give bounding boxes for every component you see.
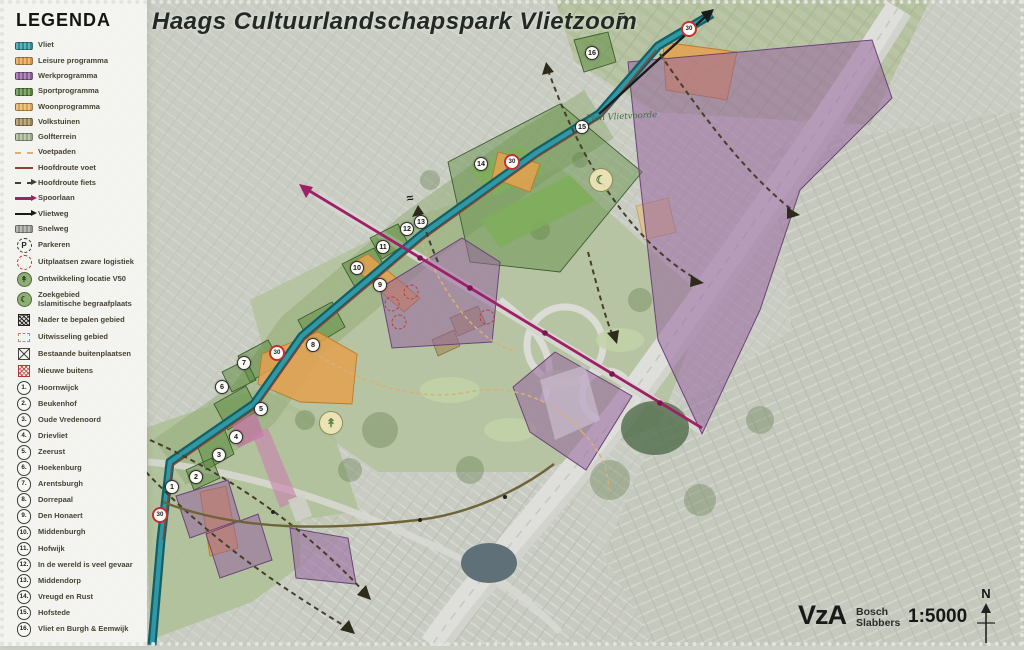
legend-item: Woonprogramma bbox=[14, 99, 143, 114]
legend-numbered-item: 13.Middendorp bbox=[14, 573, 143, 589]
numbered-circle-icon: 6. bbox=[14, 461, 34, 476]
map-stage: 1234567891011121314151630303030↟☾≈≈ Plan… bbox=[0, 0, 1024, 646]
legend-numbered-item: 15.Hofstede bbox=[14, 605, 143, 621]
heavy-logistics-relocation-marker bbox=[385, 297, 400, 312]
legend-numbered-item: 2.Beukenhof bbox=[14, 396, 143, 412]
parkeren-icon: P bbox=[14, 238, 34, 253]
numbered-circle-icon: 12. bbox=[14, 558, 34, 573]
legend-label: Hofstede bbox=[38, 609, 70, 618]
legend-item: Snelweg bbox=[14, 222, 143, 237]
speed-sign-30: 30 bbox=[681, 21, 697, 37]
legend-heading: LEGENDA bbox=[16, 10, 143, 31]
locatie-v50-map-icon: ↟ bbox=[319, 411, 343, 435]
legend-item: PParkeren bbox=[14, 237, 143, 254]
numbered-circle-icon: 15. bbox=[14, 606, 34, 621]
legend-item: Vlietweg bbox=[14, 206, 143, 221]
map-marker-15: 15 bbox=[575, 120, 589, 134]
legend-label: Sportprogramma bbox=[38, 87, 99, 96]
numbered-circle-icon: 16. bbox=[14, 622, 34, 637]
legend-label: Oude Vredenoord bbox=[38, 416, 101, 425]
legend-items: VlietLeisure programmaWerkprogrammaSport… bbox=[14, 38, 143, 380]
map-marker-9: 9 bbox=[373, 278, 387, 292]
legend-label: Dorrepaal bbox=[38, 496, 73, 505]
speed-sign-30: 30 bbox=[152, 507, 168, 523]
numbered-circle-icon: 3. bbox=[14, 413, 34, 428]
legend-label: Vlietweg bbox=[38, 210, 68, 219]
legend-numbered-item: 8.Dorrepaal bbox=[14, 493, 143, 509]
legend-numbered-item: 7.Arentsburgh bbox=[14, 476, 143, 492]
legend-label: Arentsburgh bbox=[38, 480, 83, 489]
locatie-v50-icon: ↟ bbox=[14, 272, 34, 287]
map-marker-14: 14 bbox=[474, 157, 488, 171]
numbered-circle-icon: 2. bbox=[14, 397, 34, 412]
legend-label: Leisure programma bbox=[38, 57, 108, 66]
legend-label: Uitwisseling gebied bbox=[38, 333, 108, 342]
map-marker-4: 4 bbox=[229, 430, 243, 444]
legend-label: Uitplaatsen zware logistiek bbox=[38, 258, 134, 267]
legend-label: Vliet bbox=[38, 41, 54, 50]
legend-item: Nader te bepalen gebied bbox=[14, 312, 143, 329]
vliet-swatch bbox=[14, 42, 34, 50]
legend-label: Hoornwijck bbox=[38, 384, 78, 393]
legend-label: Zeerust bbox=[38, 448, 65, 457]
bestaande-buitenplaatsen-icon bbox=[14, 348, 34, 360]
legend-numbered-item: 11.Hofwijk bbox=[14, 541, 143, 557]
legend-item: Werkprogramma bbox=[14, 69, 143, 84]
map-marker-10: 10 bbox=[350, 261, 364, 275]
map-marker-7: 7 bbox=[237, 356, 251, 370]
scale-text: 1:5000 bbox=[908, 606, 967, 628]
sportprogramma-swatch bbox=[14, 88, 34, 96]
legend-numbered-item: 12.In de wereld is veel gevaar bbox=[14, 557, 143, 573]
legend-label: Golfterrein bbox=[38, 133, 76, 142]
snelweg-swatch bbox=[14, 225, 34, 233]
legend-item: Volkstuinen bbox=[14, 114, 143, 129]
legend-label: Beukenhof bbox=[38, 400, 77, 409]
legend-numbered-item: 5.Zeerust bbox=[14, 444, 143, 460]
hoofdroute-fiets-arrow-icon bbox=[14, 182, 34, 184]
legend-label: Hoekenburg bbox=[38, 464, 82, 473]
legend-numbered-item: 6.Hoekenburg bbox=[14, 460, 143, 476]
nader-te-bepalen-icon bbox=[14, 314, 34, 326]
client-logo-text: VzA bbox=[798, 600, 846, 631]
legend-label: Nader te bepalen gebied bbox=[38, 316, 125, 325]
legend-item: Leisure programma bbox=[14, 53, 143, 68]
legend-numbered-item: 9.Den Honaert bbox=[14, 509, 143, 525]
volkstuinen-swatch bbox=[14, 118, 34, 126]
legend-label: Volkstuinen bbox=[38, 118, 80, 127]
legend-numbered-item: 16.Vliet en Burgh & Eemwijk bbox=[14, 621, 143, 637]
islamitische-begraafplaats-map-icon: ☾ bbox=[589, 168, 613, 192]
voetpaden-line-icon bbox=[14, 152, 34, 154]
legend-label: Voetpaden bbox=[38, 148, 76, 157]
legend-item: Uitplaatsen zware logistiek bbox=[14, 254, 143, 271]
legend-item: Nieuwe buitens bbox=[14, 363, 143, 380]
legend-item: Uitwisseling gebied bbox=[14, 329, 143, 346]
firm-line2: Slabbers bbox=[856, 617, 900, 629]
legend-label: ZoekgebiedIslamitische begraafplaats bbox=[38, 291, 132, 308]
legend-panel: LEGENDA VlietLeisure programmaWerkprogra… bbox=[0, 0, 147, 646]
legend-label: Drievliet bbox=[38, 432, 68, 441]
vlietweg-arrow-icon bbox=[14, 213, 34, 215]
legend-label: Werkprogramma bbox=[38, 72, 97, 81]
heavy-logistics-relocation-marker bbox=[404, 285, 419, 300]
legend-label: Hoofdroute fiets bbox=[38, 179, 96, 188]
map-marker-12: 12 bbox=[400, 222, 414, 236]
werkprogramma-swatch bbox=[14, 72, 34, 80]
numbered-circle-icon: 1. bbox=[14, 381, 34, 396]
map-marker-8: 8 bbox=[306, 338, 320, 352]
legend-numbered-item: 3.Oude Vredenoord bbox=[14, 412, 143, 428]
page-title: Haags Cultuurlandschapspark Vlietzoom bbox=[152, 8, 637, 36]
hoofdroute-voet-line-icon bbox=[14, 167, 34, 169]
map-marker-13: 13 bbox=[414, 215, 428, 229]
north-label: N bbox=[966, 586, 1006, 601]
legend-numbered-item: 4.Drievliet bbox=[14, 428, 143, 444]
leisure-swatch bbox=[14, 57, 34, 65]
numbered-circle-icon: 11. bbox=[14, 542, 34, 557]
legend-label: Bestaande buitenplaatsen bbox=[38, 350, 131, 359]
legend-item: Spoorlaan bbox=[14, 191, 143, 206]
woonprogramma-swatch bbox=[14, 103, 34, 111]
legend-label: In de wereld is veel gevaar bbox=[38, 561, 133, 570]
numbered-circle-icon: 14. bbox=[14, 590, 34, 605]
north-arrow-icon bbox=[966, 601, 1006, 645]
heavy-logistics-relocation-marker bbox=[392, 315, 407, 330]
legend-label: Vreugd en Rust bbox=[38, 593, 93, 602]
legend-item: ☾ZoekgebiedIslamitische begraafplaats bbox=[14, 288, 143, 312]
legend-numbered-item: 1.Hoornwijck bbox=[14, 380, 143, 396]
legend-label: Spoorlaan bbox=[38, 194, 75, 203]
numbered-circle-icon: 13. bbox=[14, 574, 34, 589]
legend-item: Golfterrein bbox=[14, 130, 143, 145]
map-marker-1: 1 bbox=[165, 480, 179, 494]
legend-label: Vliet en Burgh & Eemwijk bbox=[38, 625, 128, 634]
legend-numbered-items: 1.Hoornwijck2.Beukenhof3.Oude Vredenoord… bbox=[14, 380, 143, 638]
legend-label: Middendorp bbox=[38, 577, 81, 586]
map-marker-16: 16 bbox=[585, 46, 599, 60]
islamitische-begraafplaats-icon: ☾ bbox=[14, 292, 34, 307]
numbered-circle-icon: 10. bbox=[14, 526, 34, 541]
legend-item: ↟Ontwikkeling locatie V50 bbox=[14, 271, 143, 288]
map-marker-3: 3 bbox=[212, 448, 226, 462]
zware-logistiek-icon bbox=[14, 255, 34, 270]
bridge-squiggle-icon: ≈ bbox=[405, 190, 414, 205]
legend-item: Bestaande buitenplaatsen bbox=[14, 346, 143, 363]
legend-numbered-item: 14.Vreugd en Rust bbox=[14, 589, 143, 605]
legend-numbered-item: 10.Middenburgh bbox=[14, 525, 143, 541]
speed-sign-30: 30 bbox=[269, 345, 285, 361]
legend-label: Ontwikkeling locatie V50 bbox=[38, 275, 126, 284]
nieuwe-buitens-icon bbox=[14, 365, 34, 377]
legend-label: Snelweg bbox=[38, 225, 68, 234]
legend-label: Hoofdroute voet bbox=[38, 164, 96, 173]
firm-logo-text: Bosch Slabbers bbox=[856, 607, 900, 629]
north-arrow: N bbox=[966, 586, 1006, 650]
legend-label: Parkeren bbox=[38, 241, 70, 250]
legend-label: Hofwijk bbox=[38, 545, 65, 554]
legend-item: Vliet bbox=[14, 38, 143, 53]
map-marker-5: 5 bbox=[254, 402, 268, 416]
legend-item: Voetpaden bbox=[14, 145, 143, 160]
legend-item: Hoofdroute fiets bbox=[14, 176, 143, 191]
map-marker-6: 6 bbox=[215, 380, 229, 394]
numbered-circle-icon: 9. bbox=[14, 509, 34, 524]
map-markers: 1234567891011121314151630303030↟☾≈≈ bbox=[0, 0, 1024, 646]
map-marker-11: 11 bbox=[376, 240, 390, 254]
legend-item: Hoofdroute voet bbox=[14, 160, 143, 175]
legend-item: Sportprogramma bbox=[14, 84, 143, 99]
legend-label: Middenburgh bbox=[38, 528, 86, 537]
uitwisseling-gebied-icon bbox=[14, 333, 34, 342]
heavy-logistics-relocation-marker bbox=[480, 310, 495, 325]
numbered-circle-icon: 5. bbox=[14, 445, 34, 460]
map-marker-2: 2 bbox=[189, 470, 203, 484]
speed-sign-30: 30 bbox=[504, 154, 520, 170]
numbered-circle-icon: 8. bbox=[14, 493, 34, 508]
numbered-circle-icon: 7. bbox=[14, 477, 34, 492]
legend-label: Nieuwe buitens bbox=[38, 367, 93, 376]
legend-label: Woonprogramma bbox=[38, 103, 100, 112]
legend-label: Den Honaert bbox=[38, 512, 83, 521]
numbered-circle-icon: 4. bbox=[14, 429, 34, 444]
golfterrein-swatch bbox=[14, 133, 34, 141]
spoorlaan-arrow-icon bbox=[14, 197, 34, 200]
